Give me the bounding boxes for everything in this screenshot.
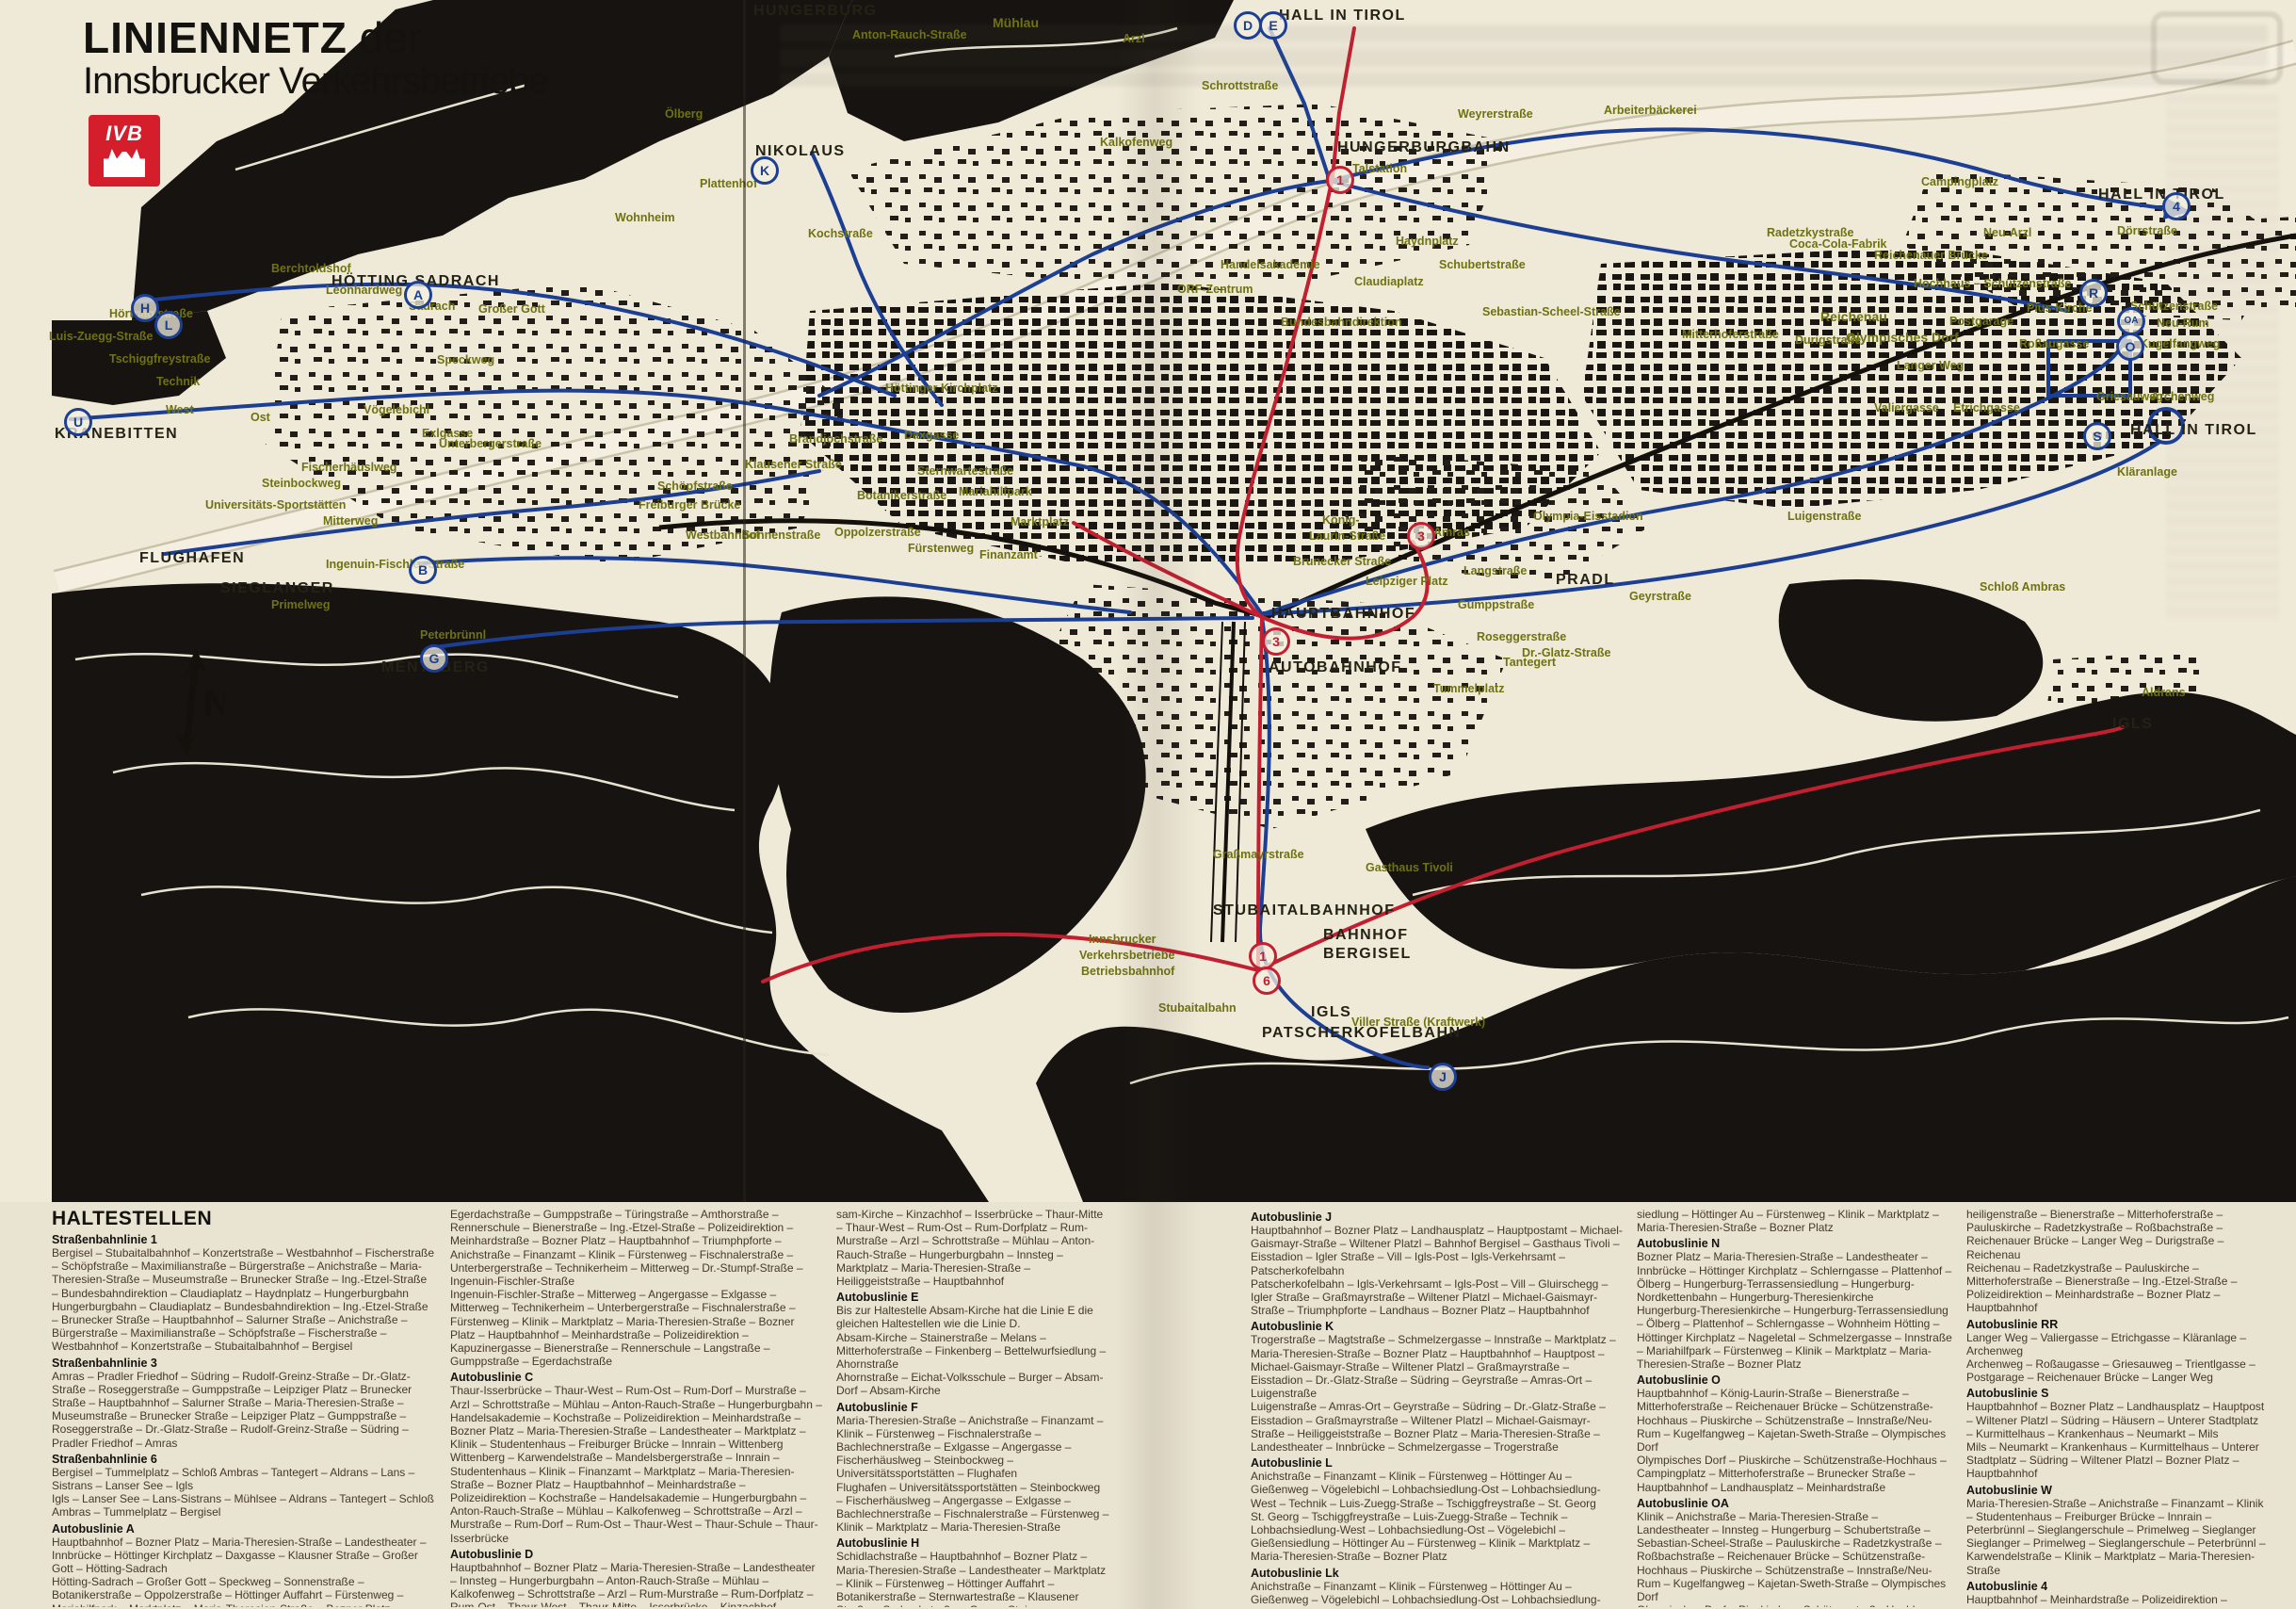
route-heading: Autobuslinie W: [1966, 1484, 2266, 1497]
map-street-label: Neu-Rum: [2157, 317, 2209, 330]
route-stops: Trogerstraße – Magtstraße – Schmelzergas…: [1251, 1333, 1623, 1400]
ivb-logo-text: IVB: [89, 122, 160, 146]
route-stops: Egerdachstraße – Gumppstraße – Türingstr…: [450, 1208, 822, 1288]
map-station-label: HUNGERBURG: [753, 3, 877, 20]
route-stops: Flughafen – Universitätssportstätten – S…: [836, 1481, 1109, 1535]
map-street-label: Tummelplatz: [1433, 682, 1504, 695]
route-stops: St. Georg – Tschiggfreystraße – Luis-Zue…: [1251, 1510, 1623, 1564]
map-street-label: Wohnheim: [615, 211, 675, 224]
map-station-label: HALL IN TIROL: [2098, 187, 2225, 203]
map-street-label: Kläranlage: [2117, 465, 2177, 479]
route-stops: Luigenstraße – Amras-Ort – Geyrstraße – …: [1251, 1400, 1623, 1454]
route-stops: Olympisches Dorf – Piuskirche – Schützen…: [1637, 1454, 1952, 1494]
route-stops: Sieglanger – Primelweg – Sieglangerschul…: [1966, 1536, 2266, 1577]
route-stops: Thaur-Isserbrücke – Thaur-West – Rum-Ost…: [450, 1384, 822, 1451]
map-street-label: Hochhaus – Schützenstraße: [1914, 277, 2071, 290]
route-heading: Autobuslinie H: [836, 1536, 1109, 1550]
map-street-label: Berchtoldshof: [271, 262, 351, 275]
route-heading: Autobuslinie Lk: [1251, 1567, 1623, 1580]
haltestellen-column-3: sam-Kirche – Kinzachhof – Isserbrücke – …: [836, 1208, 1109, 1607]
line-badge-O: O: [2116, 333, 2144, 361]
map-street-label: Unterbergerstraße: [439, 437, 542, 450]
route-stops: Hauptbahnhof – Bozner Platz – Maria-Ther…: [52, 1536, 436, 1576]
route-stops: Anichstraße – Finanzamt – Klinik – Fürst…: [1251, 1470, 1623, 1510]
compass-north: N: [158, 648, 224, 761]
haltestellen-column-5: siedlung – Höttinger Au – Fürstenweg – K…: [1637, 1208, 1952, 1607]
route-stops: Amras – Pradler Friedhof – Südring – Rud…: [52, 1370, 436, 1450]
map-street-label: Graßmayrstraße: [1213, 848, 1304, 861]
route-heading: Autobuslinie D: [450, 1548, 822, 1561]
haltestellen-column-1: HALTESTELLENStraßenbahnlinie 1Bergisel –…: [52, 1208, 436, 1607]
route-stops: Absam-Kirche – Stainerstraße – Melans – …: [836, 1331, 1109, 1372]
route-stops: Anichstraße – Finanzamt – Klinik – Fürst…: [1251, 1580, 1623, 1607]
map-street-label: Fürstenweg: [908, 542, 974, 555]
map-street-label: Gasthaus Tivoli: [1366, 861, 1453, 874]
map-street-label: Tschiggfreystraße: [109, 352, 210, 366]
line-badge-L: L: [154, 311, 183, 339]
map-street-label: Gumppstraße: [1458, 598, 1534, 611]
map-street-label: Coca-Cola-Fabrik: [1789, 237, 1887, 251]
route-heading: Straßenbahnlinie 1: [52, 1233, 436, 1246]
route-stops: Bis zur Haltestelle Absam-Kirche hat die…: [836, 1304, 1109, 1330]
map-street-label: Sternwartestraße: [917, 464, 1013, 478]
haltestellen-column-4: Autobuslinie JHauptbahnhof – Bozner Plat…: [1251, 1208, 1623, 1607]
route-stops: Hauptbahnhof – König-Laurin-Straße – Bie…: [1637, 1387, 1952, 1454]
route-heading: Straßenbahnlinie 6: [52, 1453, 436, 1466]
line-badge-J: J: [1429, 1063, 1457, 1091]
map-street-label: Geyrstraße: [1629, 590, 1691, 603]
map-street-label: König-: [1322, 513, 1360, 527]
route-stops: Patscherkofelbahn – Igls-Verkehrsamt – I…: [1251, 1277, 1623, 1318]
line-badge-R: R: [2079, 279, 2108, 307]
route-stops: siedlung – Höttinger Au – Fürstenweg – K…: [1637, 1208, 1952, 1234]
route-stops: Archenweg – Roßaugasse – Griesauweg – Tr…: [1966, 1357, 2266, 1384]
line-badge-1: 1: [1326, 166, 1354, 194]
map-street-label: Marktplatz: [1011, 515, 1069, 528]
map-street-label: Neu-Arzl: [1983, 226, 2031, 239]
compass-letter: N: [203, 683, 224, 724]
route-stops: Mils – Neumarkt – Krankenhaus – Kurmitte…: [1966, 1440, 2266, 1481]
map-street-label: Postgarage: [1949, 315, 2013, 328]
haltestellen-column-6: heiligenstraße – Bienerstraße – Mitterho…: [1966, 1208, 2266, 1607]
map-street-label: Kalkofenweg: [1100, 136, 1172, 149]
map-street-label: Viller Straße (Kraftwerk): [1351, 1016, 1485, 1029]
map-street-label: Ölberg: [665, 107, 703, 121]
map-station-label: BERGISEL: [1323, 946, 1412, 963]
map-street-label: West: [166, 403, 194, 416]
map-street-label: Daxgasse: [904, 429, 959, 442]
map-street-label: Brunecker Straße: [1293, 555, 1391, 568]
route-heading: Autobuslinie J: [1251, 1211, 1623, 1224]
map-street-label: Durigstraße: [1795, 333, 1861, 347]
tram-icon: [104, 149, 145, 177]
map-station-label: SIEGLANGER: [220, 580, 334, 597]
route-heading: Autobuslinie F: [836, 1401, 1109, 1414]
map-street-label: Westbahnhof: [686, 528, 760, 542]
map-street-label: ORF-Zentrum: [1177, 283, 1253, 296]
map-street-label: Olympisches Dorf: [1846, 330, 1959, 345]
map-street-label: Steinbockweg: [262, 477, 341, 490]
map-street-label: Archenweg: [2151, 390, 2214, 403]
map-street-label: Mitterweg: [323, 514, 378, 528]
line-badge-K: K: [751, 156, 779, 185]
map-street-label: Leipziger Platz: [1366, 575, 1448, 588]
route-heading: Autobuslinie O: [1637, 1373, 1952, 1387]
map-street-label: Claudiaplatz: [1354, 275, 1424, 288]
map-street-label: Plattenhof: [700, 177, 757, 190]
map-street-label: Innsbrucker: [1089, 933, 1156, 946]
map-street-label: Großer Gott: [478, 302, 545, 316]
map-street-label: Brandjochstraße: [789, 432, 882, 446]
haltestellen-heading: HALTESTELLEN: [52, 1208, 436, 1230]
map-street-label: Roseggerstraße: [1477, 630, 1566, 643]
route-heading: Autobuslinie E: [836, 1291, 1109, 1304]
ivb-logo: IVB: [89, 115, 160, 187]
route-stops: Wittenberg – Karwendelstraße – Mandelsbe…: [450, 1451, 822, 1544]
route-stops: Olympisches Dorf – Piuskirche – Schützen…: [1637, 1603, 1952, 1607]
haltestellen-section: HALTESTELLENStraßenbahnlinie 1Bergisel –…: [0, 1208, 2296, 1609]
map-street-label: Handelsakademie: [1221, 258, 1320, 271]
line-badge-S: S: [2083, 422, 2111, 450]
line-badge-A: A: [404, 281, 432, 309]
map-street-label: Betriebsbahnhof: [1081, 965, 1174, 978]
magazine-spread: LINIENNETZ der Innsbrucker Verkehrsbetri…: [0, 0, 2296, 1609]
map-street-label: Peterbrünnl: [420, 628, 486, 642]
route-heading: Autobuslinie 4: [1966, 1580, 2266, 1593]
map-street-label: Kochstraße: [808, 227, 873, 240]
route-stops: Bozner Platz – Maria-Theresien-Straße – …: [1637, 1250, 1952, 1304]
map-street-label: Vögelebichl: [364, 403, 429, 416]
map-street-label: Arzl: [1123, 32, 1145, 45]
map-street-label: Finanzamt: [979, 548, 1038, 561]
map-street-label: Pius-Kirche: [2027, 301, 2092, 315]
title-line2: Innsbrucker Verkehrsbetriebe: [83, 60, 549, 102]
route-stops: sam-Kirche – Kinzachhof – Isserbrücke – …: [836, 1208, 1109, 1288]
route-stops: Maria-Theresien-Straße – Anichstraße – F…: [836, 1414, 1109, 1481]
map-street-label: Schrottstraße: [1202, 79, 1278, 92]
map-station-label: IGLS: [1311, 1004, 1351, 1021]
map-street-label: Ingenuin-Fischler-Straße: [326, 558, 464, 571]
line-badge-OA: OA: [2117, 307, 2145, 335]
route-heading: Autobuslinie OA: [1637, 1497, 1952, 1510]
map-street-label: Haydnplatz: [1396, 235, 1459, 248]
route-stops: Bergisel – Stubaitalbahnhof – Konzertstr…: [52, 1246, 436, 1300]
map-station-label: PRADL: [1556, 572, 1615, 589]
route-stops: Klinik – Anichstraße – Maria-Theresien-S…: [1637, 1510, 1952, 1603]
map-street-label: Höttinger Kirchplatz: [885, 382, 997, 395]
line-badge-4: 4: [2162, 192, 2191, 220]
map-street-label: Arbeiterbäckerei: [1604, 104, 1697, 117]
map-street-label: Fischerhäuslweg: [301, 461, 396, 474]
route-stops: Hauptbahnhof – Meinhardstraße – Polizeid…: [1966, 1593, 2266, 1607]
map-station-label: BAHNHOF: [1323, 927, 1409, 944]
route-heading: Autobuslinie N: [1637, 1237, 1952, 1250]
map-station-label: HALL IN TIROL: [2130, 422, 2257, 439]
map-title: LINIENNETZ der Innsbrucker Verkehrsbetri…: [83, 15, 549, 187]
map-street-label: Kugelfangweg: [2140, 337, 2220, 350]
map-street-label: Reichenauer Brücke: [1874, 249, 1988, 262]
map-street-label: Roßaugasse: [2019, 337, 2089, 350]
route-stops: Hauptbahnhof – Bozner Platz – Landhauspl…: [1251, 1224, 1623, 1277]
route-stops: Hungerburgbahn – Claudiaplatz – Bundesba…: [52, 1300, 436, 1354]
map-street-label: Etrichgasse: [1953, 401, 2020, 414]
route-heading: Straßenbahnlinie 3: [52, 1357, 436, 1370]
route-stops: Reichenau – Radetzkystraße – Pauluskirch…: [1966, 1261, 2266, 1315]
route-stops: Schidlachstraße – Hauptbahnhof – Bozner …: [836, 1550, 1109, 1607]
map-street-label: Tantegert: [1503, 656, 1556, 669]
route-heading: Autobuslinie C: [450, 1371, 822, 1384]
map-street-label: Sebastian-Scheel-Straße: [1482, 305, 1621, 318]
map-street-label: Aldrans: [2142, 686, 2186, 699]
map-street-label: Campingplatz: [1921, 175, 1998, 188]
map-street-label: Bundesbahndirektion: [1281, 316, 1401, 329]
map-street-label: Universitäts-Sportstätten: [205, 498, 346, 512]
line-badge-6: 6: [1253, 967, 1281, 995]
map-street-label: Mariahilfpark: [959, 485, 1032, 498]
route-stops: Hauptbahnhof – Bozner Platz – Maria-Ther…: [450, 1561, 822, 1607]
map-station-label: HAUPTBAHNHOF: [1271, 606, 1415, 623]
title-line1: LINIENNETZ der: [83, 15, 549, 60]
map-street-label: Schloß Ambras: [1980, 580, 2065, 593]
route-stops: Igls – Lanser See – Lans-Sistrans – Mühl…: [52, 1492, 436, 1519]
map-street-label: Langer Weg: [1897, 359, 1964, 372]
map-street-label: Weyrerstraße: [1458, 107, 1533, 121]
map-street-label: Amras: [1433, 526, 1470, 539]
map-street-label: Oppolzerstraße: [834, 526, 921, 539]
map-station-label: HUNGERBURGBAHN: [1337, 139, 1511, 156]
route-heading: Autobuslinie S: [1966, 1387, 2266, 1400]
map-street-label: Anton-Rauch-Straße: [852, 28, 967, 41]
line-badge-3: 3: [1407, 522, 1435, 550]
map-street-label: Schöpfstraße: [657, 479, 733, 493]
route-stops: Ahornstraße – Eichat-Volksschule – Burge…: [836, 1371, 1109, 1397]
map-street-label: Mitterhoferstraße: [1682, 328, 1779, 341]
map-street-label: Valiergasse: [1874, 401, 1939, 414]
line-badge-B: B: [409, 556, 437, 584]
route-heading: Autobuslinie A: [52, 1522, 436, 1536]
map-street-label: Mühlau: [993, 15, 1039, 30]
map-station-label: FLUGHAFEN: [139, 550, 245, 567]
line-badge-3: 3: [1262, 627, 1290, 656]
route-stops: Ingenuin-Fischler-Straße – Mitterweg – A…: [450, 1288, 822, 1368]
line-badge-D: D: [1234, 11, 1262, 40]
map-street-label: Speckweg: [437, 353, 494, 366]
map-street-label: Luis-Zuegg-Straße: [49, 330, 153, 343]
route-stops: Hötting-Sadrach – Großer Gott – Speckweg…: [52, 1575, 436, 1607]
line-badge-G: G: [420, 644, 448, 673]
map-street-label: Laurin-Straße: [1309, 529, 1385, 543]
map-street-label: Olympia-Eisstadion: [1533, 510, 1643, 523]
route-heading: Autobuslinie K: [1251, 1320, 1623, 1333]
haltestellen-column-2: Egerdachstraße – Gumppstraße – Türingstr…: [450, 1208, 822, 1607]
route-heading: Autobuslinie L: [1251, 1456, 1623, 1470]
map-station-label: HALL IN TIROL: [1279, 8, 1406, 24]
route-stops: heiligenstraße – Bienerstraße – Mitterho…: [1966, 1208, 2266, 1261]
route-heading: Autobuslinie RR: [1966, 1318, 2266, 1331]
route-stops: Hungerburg-Theresienkirche – Hungerburg-…: [1637, 1304, 1952, 1371]
map-station-label: IGLS: [2112, 716, 2153, 733]
route-stops: Bergisel – Tummelplatz – Schloß Ambras –…: [52, 1466, 436, 1492]
route-stops: Hauptbahnhof – Bozner Platz – Landhauspl…: [1966, 1400, 2266, 1440]
map-sheet-seam: [743, 0, 746, 1202]
map-street-label: Reichenau: [1820, 309, 1887, 324]
map-station-label: STUBAITALBAHNHOF: [1213, 902, 1395, 919]
map-street-label: Schubertstraße: [1439, 258, 1526, 271]
map-street-label: Luigenstraße: [1787, 510, 1862, 523]
map-street-label: Technik: [156, 375, 200, 388]
route-stops: Langer Weg – Valiergasse – Etrichgasse –…: [1966, 1331, 2266, 1357]
route-stops: Maria-Theresien-Straße – Anichstraße – F…: [1966, 1497, 2266, 1537]
map-street-label: Primelweg: [271, 598, 331, 611]
map-station-label: AUTOBAHNHOF: [1269, 659, 1402, 676]
map-street-label: Botanikerstraße: [857, 489, 946, 502]
map-street-label: Freiburger Brücke: [639, 498, 740, 512]
line-badge-E: E: [1259, 11, 1287, 40]
map-street-label: Ost: [251, 411, 270, 424]
map-street-label: Verkehrsbetriebe: [1079, 949, 1174, 962]
map-street-label: Dörrstraße: [2117, 224, 2177, 237]
map-street-label: Schützenstraße: [2130, 300, 2218, 313]
map-street-label: Klausener Straße: [745, 458, 842, 471]
map-street-label: Stubaitalbahn: [1158, 1001, 1237, 1015]
map-street-label: Talstation: [1352, 162, 1407, 175]
map-street-label: Leonhardweg: [326, 284, 402, 297]
line-badge-U: U: [64, 408, 92, 436]
map-street-label: Langstraße: [1463, 564, 1527, 577]
